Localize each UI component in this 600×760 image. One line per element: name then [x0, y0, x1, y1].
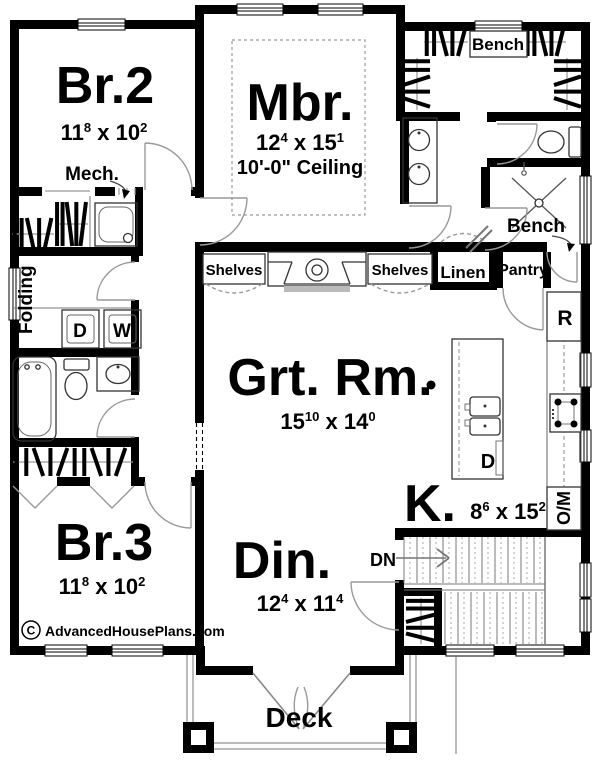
- toilet: [65, 373, 87, 400]
- closet-bench-label: Bench: [472, 35, 524, 54]
- toilet-tank: [64, 359, 89, 370]
- window-entry-1: [580, 563, 591, 597]
- mech-label: Mech.: [65, 164, 119, 185]
- shower-bench-label: Bench: [507, 216, 565, 237]
- room-dim-br2: 118 x 102: [61, 120, 148, 145]
- dryer-label: D: [73, 321, 87, 342]
- window-kitchen-1: [580, 353, 591, 387]
- shower-drain: [535, 199, 543, 207]
- pantry-label: Pantry: [498, 262, 548, 279]
- room-label-grt: Grt. Rm.: [227, 349, 432, 407]
- room-dim-mbr: 124 x 151: [256, 130, 344, 155]
- svg-text:C: C: [27, 624, 36, 638]
- refrigerator-label: R: [557, 307, 572, 330]
- room-dim-din: 124 x 114: [257, 591, 344, 616]
- washer-label: W: [113, 321, 131, 342]
- toilet: [538, 131, 564, 153]
- watermark: C AdvancedHousePlans.com: [22, 621, 225, 639]
- toilet-tank: [569, 127, 581, 157]
- room-label-br2: Br.2: [56, 57, 154, 115]
- window-br2: [78, 19, 125, 30]
- shelves-left-label: Shelves: [206, 262, 263, 279]
- floor-plan-page: Br.2 118 x 102 Mbr. 124 x 151 10'-0" Cei…: [0, 0, 600, 760]
- window-shower: [580, 176, 591, 244]
- room-label-kitchen: K.: [404, 475, 456, 533]
- room-dim-kitchen: 86 x 152: [470, 499, 546, 524]
- oven-microwave-label: O/M: [554, 491, 574, 525]
- dishwasher-label: D: [481, 451, 495, 473]
- room-label-mbr: Mbr.: [247, 74, 354, 132]
- room-label-br3: Br.3: [55, 514, 153, 572]
- watermark-text: AdvancedHousePlans.com: [45, 623, 225, 639]
- linen-label: Linen: [440, 263, 485, 282]
- dn-label: DN: [370, 550, 396, 570]
- room-label-din: Din.: [233, 532, 331, 590]
- room-dim-br3: 118 x 102: [59, 574, 146, 599]
- room-dim-grt: 1510 x 140: [280, 409, 375, 434]
- deck-label: Deck: [266, 702, 333, 733]
- hearth: [284, 286, 350, 292]
- floor-plan: Br.2 118 x 102 Mbr. 124 x 151 10'-0" Cei…: [0, 0, 600, 760]
- window-mbr-1: [237, 4, 283, 15]
- window-br3-2: [112, 645, 163, 656]
- folding-label: Folding: [16, 265, 37, 334]
- mbr-ceiling-note: 10'-0" Ceiling: [237, 157, 364, 179]
- window-entry-b1: [446, 645, 494, 656]
- window-kitchen-2: [580, 430, 591, 462]
- window-br3-1: [45, 645, 87, 656]
- window-mbr-2: [318, 4, 363, 15]
- window-entry-b2: [516, 645, 564, 656]
- shelves-right-label: Shelves: [372, 262, 429, 279]
- window-entry-2: [580, 599, 591, 632]
